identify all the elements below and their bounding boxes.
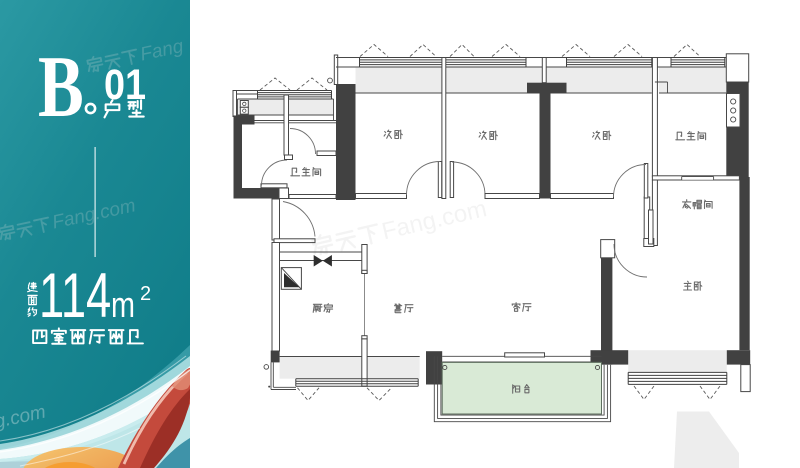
svg-text:2: 2 bbox=[140, 283, 151, 305]
svg-text:B: B bbox=[38, 39, 84, 136]
svg-text:114: 114 bbox=[39, 260, 111, 331]
svg-text:m: m bbox=[111, 284, 135, 325]
svg-text:Fang.com: Fang.com bbox=[379, 195, 489, 245]
